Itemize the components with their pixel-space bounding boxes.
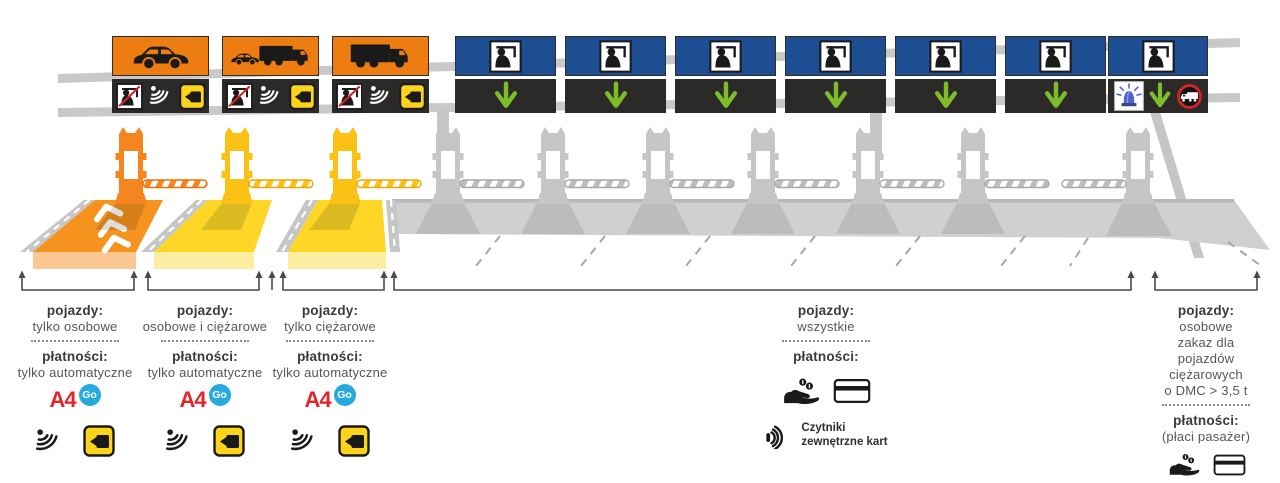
service-panel [1108, 79, 1208, 113]
toll-booth [747, 127, 779, 204]
vehicle-class-panel [895, 36, 996, 76]
vehicles-value: pojazdów [1141, 351, 1271, 367]
lane-group-label-1: pojazdy: tylko osobowe płatności: tylko … [0, 302, 150, 457]
payment-card-icon [833, 377, 871, 405]
no-toll-collector-icon [116, 83, 143, 110]
payments-heading: płatności: [255, 348, 405, 365]
down-arrow-icon [603, 81, 629, 111]
lane-sign-6 [675, 36, 776, 113]
barrier-arm [775, 180, 839, 188]
vehicle-class-panel [112, 36, 209, 76]
divider [31, 340, 119, 342]
vehicles-heading: pojazdy: [255, 302, 405, 319]
videotoll-camera-icon [338, 425, 370, 457]
lane-sign-3 [332, 36, 429, 113]
bracket-arrowheads [19, 271, 1261, 279]
service-panel [565, 79, 666, 113]
down-arrow-icon [933, 81, 959, 111]
go-logo-badge: Go [79, 384, 101, 406]
reader-note-line: Czytniki [801, 421, 887, 435]
barrier-arm [565, 180, 629, 188]
service-panel [675, 79, 776, 113]
transponder-waves-icon [165, 427, 193, 455]
payment-icons [0, 425, 150, 457]
payment-icons [255, 425, 405, 457]
toll-booth [957, 127, 989, 204]
service-panel [112, 79, 209, 113]
payments-value: tylko automatyczne [0, 365, 150, 381]
vehicle-class-panel [455, 36, 556, 76]
barrier-arm [985, 180, 1049, 188]
no-trucks-icon [1176, 83, 1203, 110]
payments-heading: płatności: [751, 348, 901, 365]
vehicles-heading: pojazdy: [1141, 302, 1271, 319]
toll-collector-icon [929, 40, 962, 73]
lane-sign-1 [112, 36, 209, 113]
card-reader-note: Czytniki zewnętrzne kart [751, 421, 901, 449]
no-toll-collector-icon [226, 83, 253, 110]
videotoll-camera-icon [83, 425, 115, 457]
lane-sign-10 [1108, 36, 1208, 113]
lane-group-label-4: pojazdy: wszystkie płatności: Czytniki z… [751, 302, 901, 449]
car-icon [131, 40, 191, 72]
barrier-arm [143, 180, 207, 188]
toll-deck-edge [392, 199, 1234, 203]
divider [1162, 404, 1250, 406]
payments-value: (płaci pasażer) [1141, 429, 1271, 445]
vehicles-value: wszystkie [751, 319, 901, 335]
toll-collector-icon [709, 40, 742, 73]
vehicles-value: ciężarowych [1141, 367, 1271, 383]
vehicle-class-panel [1108, 36, 1208, 76]
barrier-arm [460, 180, 524, 188]
service-panel [785, 79, 886, 113]
toll-plaza-diagram: pojazdy: tylko osobowe płatności: tylko … [0, 0, 1280, 483]
divider [286, 340, 374, 342]
toll-collector-icon [1039, 40, 1072, 73]
service-panel [455, 79, 556, 113]
barrier-arm [1062, 180, 1126, 188]
videotoll-camera-icon [289, 83, 316, 110]
down-arrow-icon [1148, 82, 1172, 110]
service-panel [1005, 79, 1106, 113]
lane-sign-4 [455, 36, 556, 113]
service-panel [222, 79, 319, 113]
vehicles-heading: pojazdy: [751, 302, 901, 319]
toll-booth [852, 127, 884, 204]
transponder-waves-icon [290, 427, 318, 455]
divider [161, 340, 249, 342]
a4-logo-text: A4 [179, 387, 205, 413]
payments-heading: płatności: [1141, 412, 1271, 429]
barrier-arm [670, 180, 734, 188]
vehicle-class-panel [565, 36, 666, 76]
barrier-arm [249, 180, 313, 188]
toll-booth [642, 127, 674, 204]
toll-booth [537, 127, 569, 204]
down-arrow-icon [823, 81, 849, 111]
down-arrow-icon [1043, 81, 1069, 111]
lane-sign-7 [785, 36, 886, 113]
a4-logo-text: A4 [304, 387, 330, 413]
down-arrow-icon [493, 81, 519, 111]
car-and-truck-icon [230, 41, 312, 71]
payment-icons [1141, 451, 1271, 478]
service-panel [332, 79, 429, 113]
lane-group-label-3: pojazdy: tylko ciężarowe płatności: tylk… [255, 302, 405, 457]
lane-group-brackets [22, 277, 1257, 290]
go-logo-badge: Go [334, 384, 356, 406]
truck-icon [349, 40, 413, 72]
toll-booth [432, 127, 464, 204]
vehicles-value: tylko osobowe [0, 319, 150, 335]
toll-collector-icon [489, 40, 522, 73]
vehicles-value: tylko ciężarowe [255, 319, 405, 335]
lane-divider-dashes [476, 236, 1264, 268]
vehicles-value: zakaz dla [1141, 335, 1271, 351]
lane-sign-9 [1005, 36, 1106, 113]
no-toll-collector-icon [336, 83, 363, 110]
videotoll-camera-icon [399, 83, 426, 110]
vehicle-class-panel [785, 36, 886, 76]
contactless-reader-icon [764, 421, 792, 449]
payments-value: tylko automatyczne [255, 365, 405, 381]
transponder-waves-icon [259, 84, 283, 108]
lane-sign-2 [222, 36, 319, 113]
payment-card-icon [1213, 453, 1246, 477]
toll-booth [1122, 127, 1154, 204]
hand-coins-icon [781, 375, 821, 407]
vehicles-heading: pojazdy: [0, 302, 150, 319]
barrier-arm [357, 180, 421, 188]
toll-collector-icon [1142, 40, 1175, 73]
service-panel [895, 79, 996, 113]
a4-go-logo: A4 Go [255, 387, 405, 413]
hand-coins-icon [1167, 451, 1201, 478]
go-logo-badge: Go [209, 384, 231, 406]
down-arrow-icon [713, 81, 739, 111]
vehicles-value: osobowe [1141, 319, 1271, 335]
toll-booth [115, 127, 147, 204]
toll-booth [329, 127, 361, 204]
transponder-waves-icon [369, 84, 393, 108]
payments-heading: płatności: [0, 348, 150, 365]
payment-icons [751, 375, 901, 407]
toll-collector-icon [599, 40, 632, 73]
a4-go-logo: A4 Go [0, 387, 150, 413]
videotoll-camera-icon [179, 83, 206, 110]
lane-group-label-5: pojazdy: osobowe zakaz dla pojazdów cięż… [1141, 302, 1271, 478]
lane-sign-5 [565, 36, 666, 113]
lane-sign-8 [895, 36, 996, 113]
videotoll-camera-icon [213, 425, 245, 457]
a4-logo-text: A4 [49, 387, 75, 413]
toll-booth [221, 127, 253, 204]
vehicles-value: o DMC > 3,5 t [1141, 383, 1271, 399]
emergency-beacon-icon [1114, 81, 1144, 111]
vehicle-class-panel [222, 36, 319, 76]
transponder-waves-icon [35, 427, 63, 455]
reader-note-line: zewnętrzne kart [801, 435, 887, 449]
divider [782, 340, 870, 342]
toll-collector-icon [819, 40, 852, 73]
toll-booths [115, 127, 1154, 204]
vehicle-class-panel [675, 36, 776, 76]
barrier-arm [880, 180, 944, 188]
vehicle-class-panel [332, 36, 429, 76]
transponder-waves-icon [149, 84, 173, 108]
vehicle-class-panel [1005, 36, 1106, 76]
